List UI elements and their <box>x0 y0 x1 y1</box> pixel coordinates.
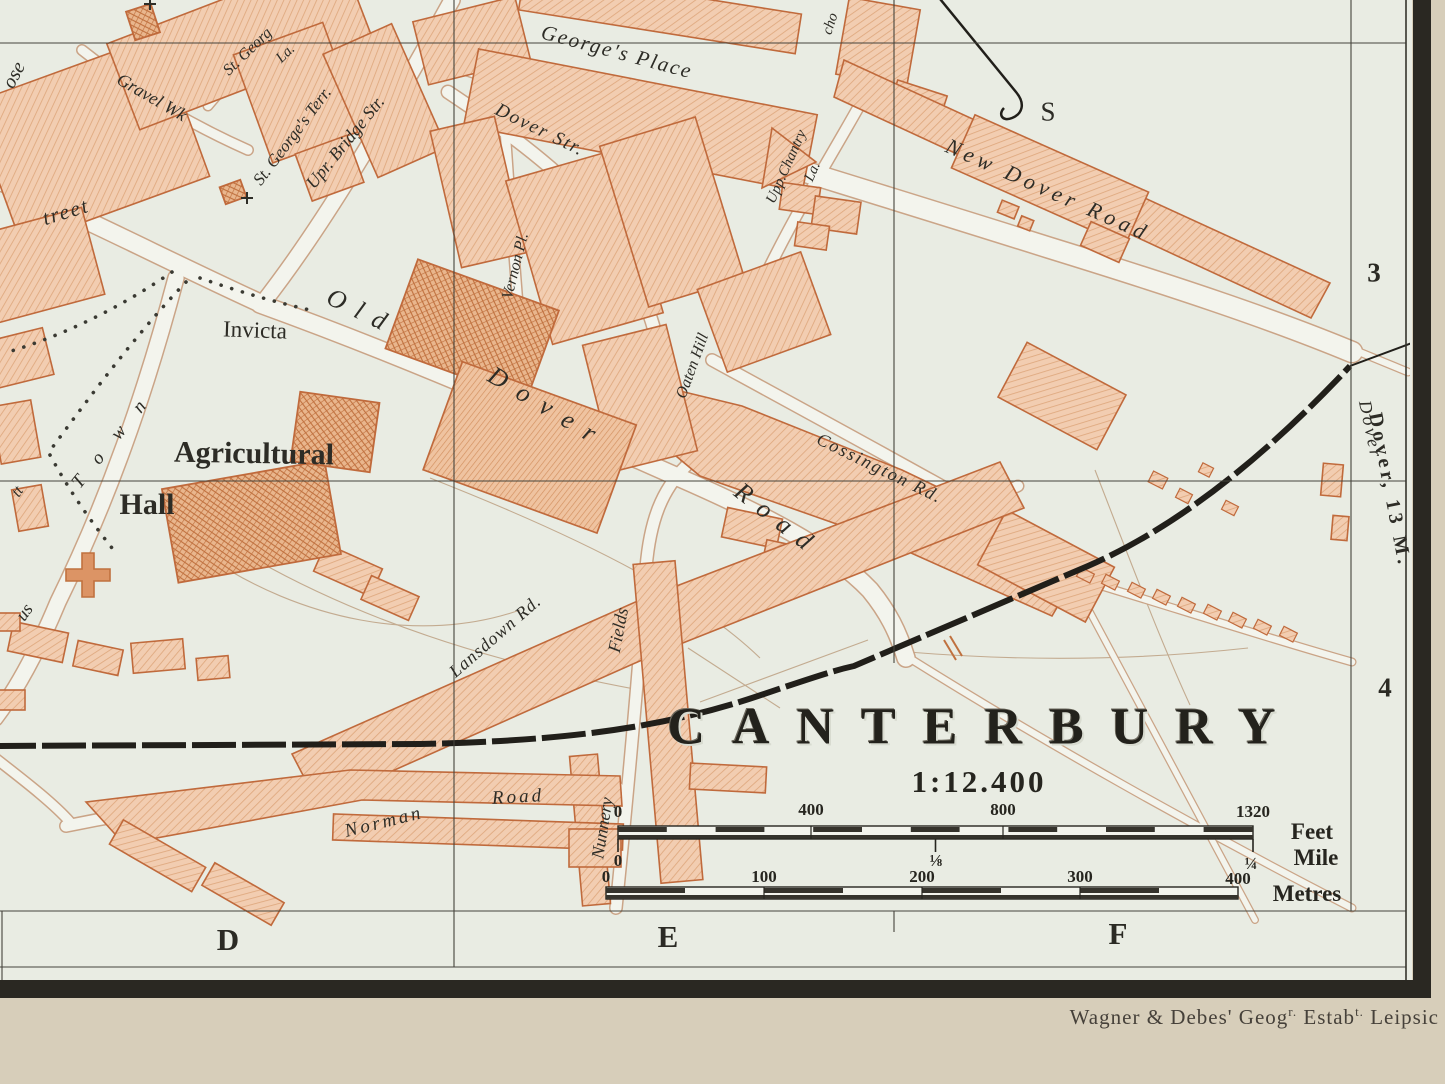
map-title: CANTERBURY <box>667 698 1302 757</box>
imprint-part3: Leipsic <box>1364 1005 1439 1029</box>
mile-unit: Mile <box>1294 845 1339 871</box>
grid-row-label-4: 4 <box>1378 673 1392 704</box>
metres-tick-100: 100 <box>751 867 777 887</box>
place-label-invicta: Invicta <box>223 317 288 342</box>
grid-row-label-3: 3 <box>1367 258 1381 289</box>
imprint-sup1: r. <box>1288 1004 1297 1019</box>
feet-bar <box>618 826 1253 839</box>
metres-unit: Metres <box>1273 881 1342 907</box>
metres-tick-0: 0 <box>602 867 611 887</box>
feet-tick-400: 400 <box>798 800 824 820</box>
feet-tick-800: 800 <box>990 800 1016 820</box>
imprint-part1: Wagner & Debes' Geog <box>1070 1005 1289 1029</box>
metres-tick-400: 400 <box>1225 869 1251 889</box>
metres-tick-200: 200 <box>909 867 935 887</box>
grid-col-label-e: E <box>658 919 679 955</box>
street-label-norman-road: Road <box>491 786 544 808</box>
imprint-sup2: t. <box>1355 1004 1364 1019</box>
place-label-hall: Hall <box>119 490 174 520</box>
mile-tick-0: 0 <box>614 851 623 871</box>
railway-label-s-fragment: S <box>1040 99 1055 126</box>
feet-unit: Feet <box>1291 819 1333 845</box>
metres-bar <box>606 887 1238 899</box>
metres-tick-300: 300 <box>1067 867 1093 887</box>
grid-col-label-f: F <box>1109 916 1128 952</box>
feet-tick-1320: 1320 <box>1236 802 1270 822</box>
publisher-imprint: Wagner & Debes' Geogr. Estabt. Leipsic <box>1070 1004 1439 1030</box>
imprint-part2: Estab <box>1297 1005 1355 1029</box>
grid-col-label-d: D <box>217 922 239 958</box>
feet-tick-0: 0 <box>614 802 623 822</box>
place-label-agricultural: Agricultural <box>174 438 334 471</box>
map-scale-ratio: 1:12.400 <box>911 764 1046 800</box>
antique-map-photo: ose treet tt cho Gravel Wk St. Georg La.… <box>0 0 1445 1084</box>
